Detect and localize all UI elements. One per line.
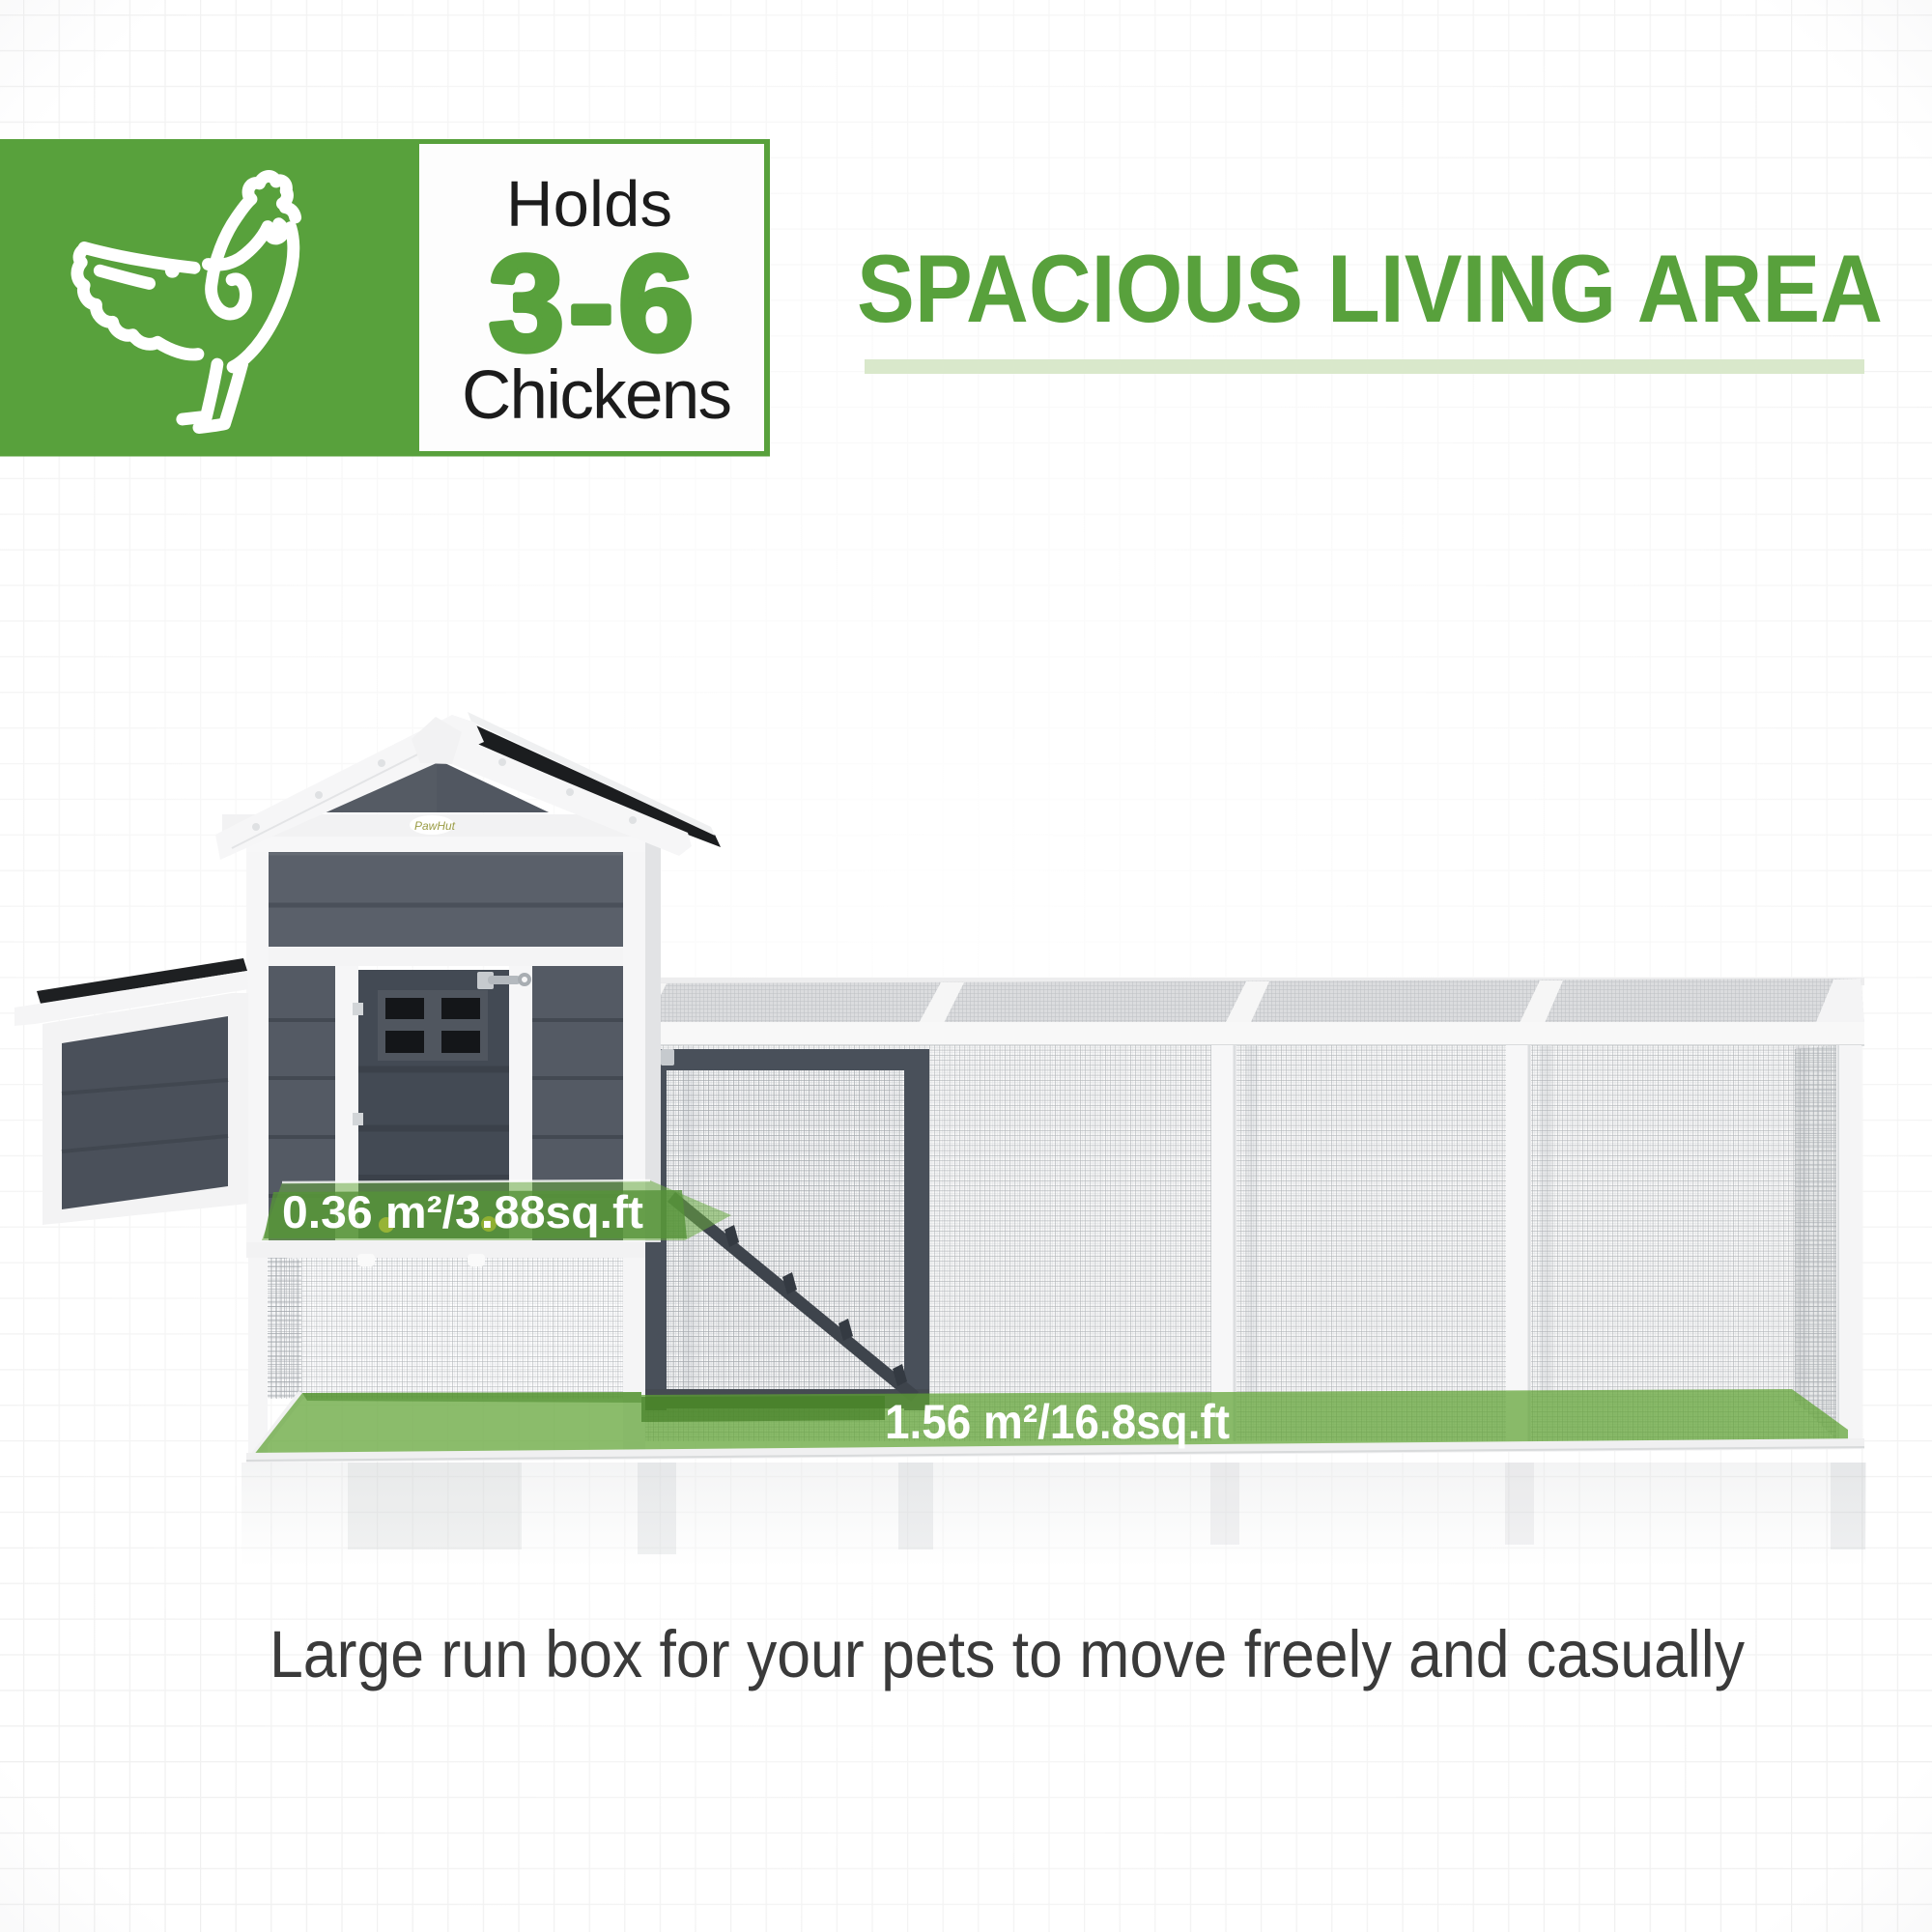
svg-text:SPACIOUS LIVING AREA: SPACIOUS LIVING AREA <box>857 235 1883 342</box>
svg-text:Chickens: Chickens <box>462 357 732 434</box>
svg-text:PawHut: PawHut <box>414 819 456 833</box>
svg-text:3-6: 3-6 <box>489 227 694 379</box>
svg-text:1.56 m²/16.8sq.ft: 1.56 m²/16.8sq.ft <box>885 1395 1230 1449</box>
svg-text:0.36 m²/3.88sq.ft: 0.36 m²/3.88sq.ft <box>282 1186 643 1237</box>
svg-text:Large run box for your pets to: Large run box for your pets to move free… <box>270 1617 1745 1691</box>
